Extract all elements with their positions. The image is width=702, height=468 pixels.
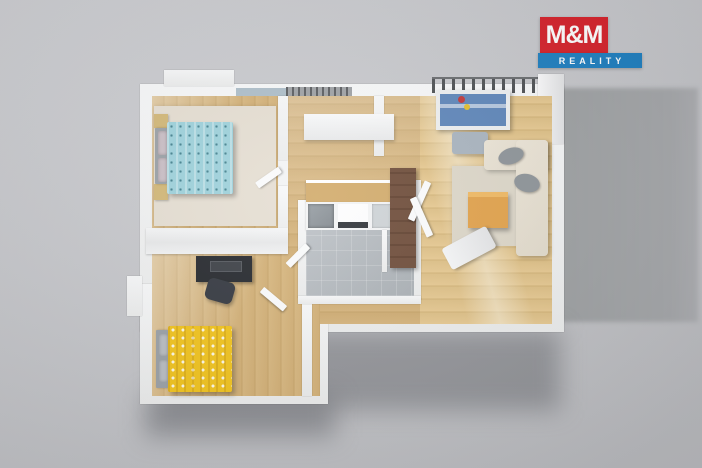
crib [436,90,510,130]
hall-wardrobe [304,114,394,140]
brand-logo-mark: M&M [540,17,608,53]
window-glass-top [236,88,288,96]
wall-bedroom2-east-lower [302,304,312,396]
bed1-pillow-a [158,131,167,155]
built-in-closet-band [146,228,288,254]
brand-banner-text: REALITY [555,56,626,66]
shower-tray [308,204,334,228]
cast-shadow-right [558,88,698,322]
coffee-table [468,192,508,228]
nightstand-bottom [154,184,168,200]
wall-bedroom1-east-lower [278,186,288,230]
brand-logo-banner: REALITY [538,53,642,68]
crib-flower-red [458,96,465,103]
floorplan-render: M&M REALITY [0,0,702,468]
crib-flower-yellow [464,104,470,110]
bed2-yellow-duvet [168,326,232,392]
window-sill-left [127,276,142,316]
brand-logo-text: M&M [546,21,603,50]
wall-bathroom-south [298,296,421,304]
bench [452,132,488,154]
desk-monitor [210,261,242,272]
bed2-pillow-b [159,360,168,382]
window-sill-top-left [164,70,234,86]
bed1-blue-duvet [167,122,233,194]
bed1-pillow-b [158,158,167,182]
crib-slat [440,104,506,108]
bed2-pillow-a [159,334,168,356]
washing-machine [338,204,368,228]
wall-bedroom1-east-upper [278,96,288,160]
wc-partition [382,230,387,272]
nightstand-top [154,114,168,128]
